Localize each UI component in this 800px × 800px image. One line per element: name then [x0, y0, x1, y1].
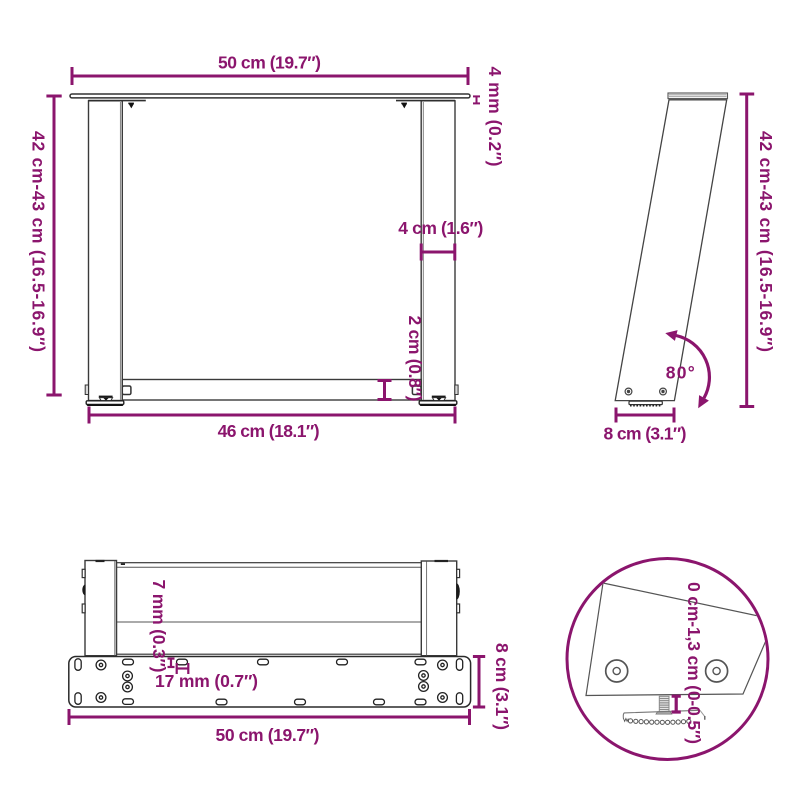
- svg-text:2 cm (0.8″): 2 cm (0.8″): [405, 316, 425, 402]
- svg-text:0 cm-1,3 cm (0-0.5″): 0 cm-1,3 cm (0-0.5″): [684, 582, 704, 744]
- svg-text:42 cm-43 cm (16.5-16.9″): 42 cm-43 cm (16.5-16.9″): [756, 131, 776, 352]
- svg-text:50 cm (19.7″): 50 cm (19.7″): [216, 725, 320, 745]
- svg-text:4 mm (0.2″): 4 mm (0.2″): [485, 67, 505, 167]
- svg-text:4 cm (1.6″): 4 cm (1.6″): [398, 218, 483, 238]
- svg-text:46 cm (18.1″): 46 cm (18.1″): [218, 421, 320, 441]
- svg-text:8 cm (3.1″): 8 cm (3.1″): [604, 424, 687, 444]
- svg-text:17 mm (0.7″): 17 mm (0.7″): [155, 671, 258, 691]
- svg-text:80°: 80°: [666, 363, 695, 383]
- svg-text:42 cm-43 cm (16.5-16.9″): 42 cm-43 cm (16.5-16.9″): [29, 131, 49, 352]
- svg-text:8 cm (3.1″): 8 cm (3.1″): [492, 643, 512, 730]
- svg-text:7 mm (0.3″): 7 mm (0.3″): [149, 580, 169, 673]
- svg-text:50 cm (19.7″): 50 cm (19.7″): [218, 53, 321, 73]
